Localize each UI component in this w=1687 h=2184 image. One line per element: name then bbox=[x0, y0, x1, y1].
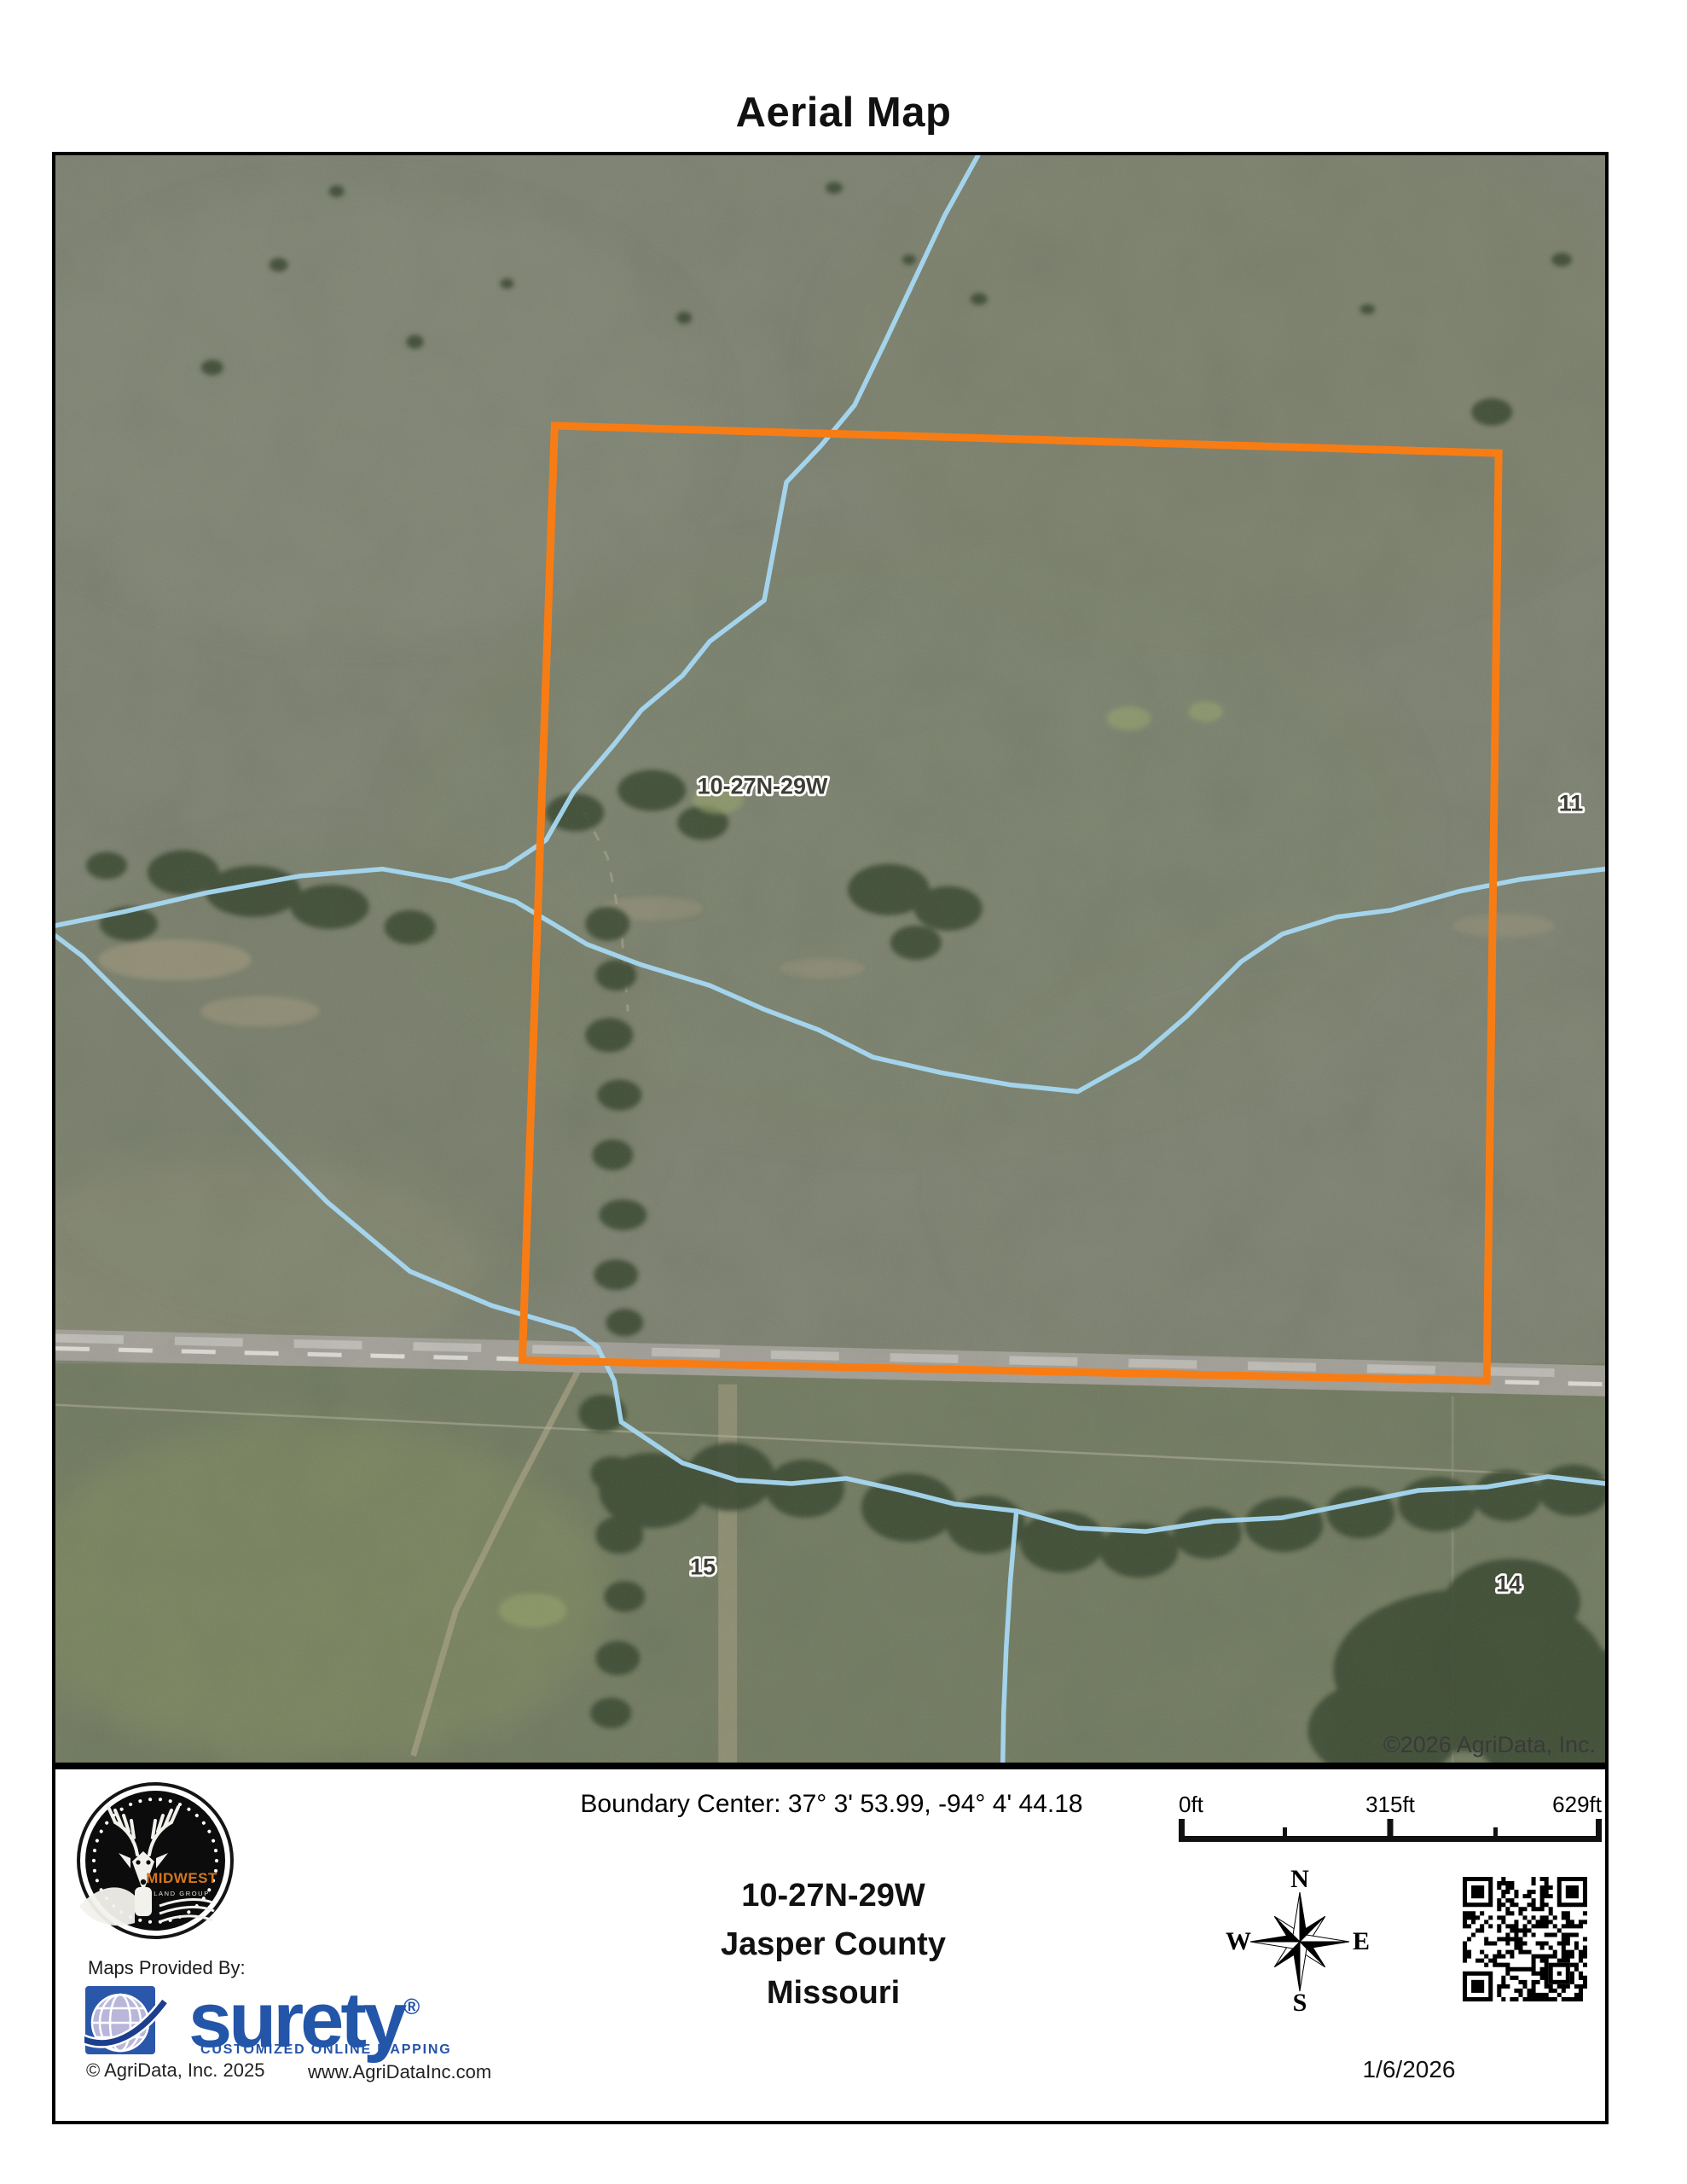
registered-mark: ® bbox=[403, 1994, 420, 2019]
scale-tick-0: 0ft bbox=[1179, 1793, 1204, 1817]
compass-east-label: E bbox=[1353, 1927, 1370, 1955]
midwest-land-group-logo: MIDWEST LAND GROUP bbox=[74, 1780, 236, 1942]
compass-north-label: N bbox=[1290, 1865, 1309, 1893]
footer-panel: MIDWEST LAND GROUP Maps Provided By: bbox=[52, 1766, 1609, 2124]
scale-tick-mid: 315ft bbox=[1365, 1793, 1416, 1817]
agridata-website: www.AgriDataInc.com bbox=[308, 2061, 491, 2083]
surety-globe-icon bbox=[84, 1983, 191, 2059]
location-block: 10-27N-29W Jasper County Missouri bbox=[663, 1872, 1004, 2018]
map-date: 1/6/2026 bbox=[1324, 2056, 1494, 2083]
land-group-logo-text: LAND GROUP bbox=[154, 1890, 210, 1897]
location-county: Jasper County bbox=[663, 1920, 1004, 1969]
aerial-map-report-page: Aerial Map bbox=[0, 0, 1687, 2184]
scale-tick-end: 629ft bbox=[1552, 1793, 1603, 1817]
plss-section-label: 10-27N-29W bbox=[698, 773, 828, 799]
section-11-label: 11 bbox=[1559, 790, 1584, 816]
surety-tagline: CUSTOMIZED ONLINE MAPPING bbox=[200, 2042, 452, 2058]
compass-rose: N E S W bbox=[1219, 1861, 1381, 2023]
section-14-label: 14 bbox=[1496, 1571, 1522, 1596]
scale-bar: 0ft 315ft 629ft bbox=[1177, 1793, 1603, 1848]
imagery-copyright: ©2026 AgriData, Inc. bbox=[1383, 1732, 1596, 1757]
qr-code bbox=[1461, 1875, 1589, 2003]
page-title: Aerial Map bbox=[0, 89, 1687, 136]
aerial-map-panel: 10-27N-29W 11 15 14 ©2026 AgriData, Inc. bbox=[52, 152, 1609, 1766]
boundary-center-coordinates: Boundary Center: 37° 3' 53.99, -94° 4' 4… bbox=[422, 1790, 1241, 1819]
coarse-noise bbox=[55, 155, 1605, 1763]
location-trs: 10-27N-29W bbox=[663, 1872, 1004, 1920]
surety-logo: surety® CUSTOMIZED ONLINE MAPPING bbox=[84, 1979, 528, 2065]
aerial-map-image: 10-27N-29W 11 15 14 ©2026 AgriData, Inc. bbox=[55, 155, 1605, 1763]
location-state: Missouri bbox=[663, 1969, 1004, 2018]
compass-south-label: S bbox=[1293, 1989, 1307, 2017]
midwest-logo-text: MIDWEST bbox=[146, 1870, 217, 1886]
agridata-copyright: © AgriData, Inc. 2025 bbox=[86, 2059, 264, 2082]
section-15-label: 15 bbox=[690, 1554, 716, 1579]
compass-west-label: W bbox=[1226, 1927, 1251, 1955]
